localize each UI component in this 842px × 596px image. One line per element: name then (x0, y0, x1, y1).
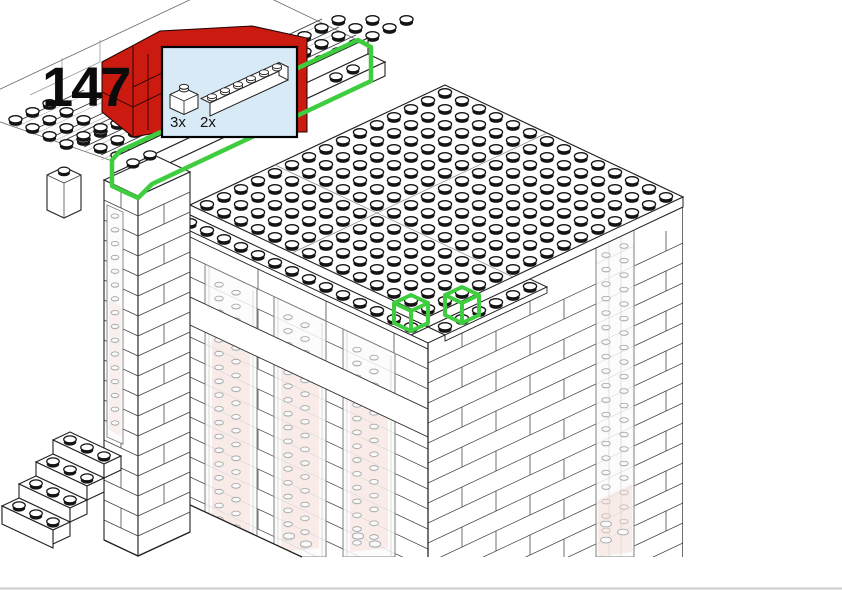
instruction-page: 3x 2x 147 (0, 0, 842, 596)
part-count-1x6: 2x (200, 114, 216, 131)
parts-callout: 3x 2x (162, 47, 297, 137)
step-number: 147 (42, 55, 129, 118)
lego-instruction-scene: 3x 2x 147 (0, 0, 842, 596)
part-count-1x1: 3x (170, 114, 186, 131)
